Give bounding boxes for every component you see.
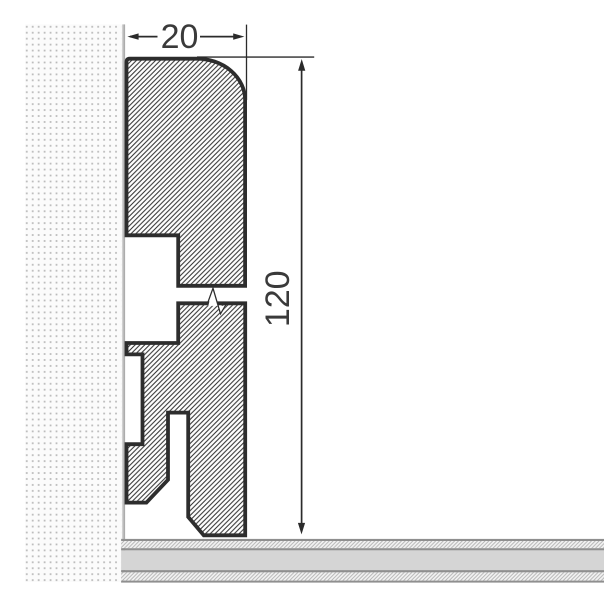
- svg-text:120: 120: [259, 270, 297, 327]
- svg-text:20: 20: [161, 18, 199, 56]
